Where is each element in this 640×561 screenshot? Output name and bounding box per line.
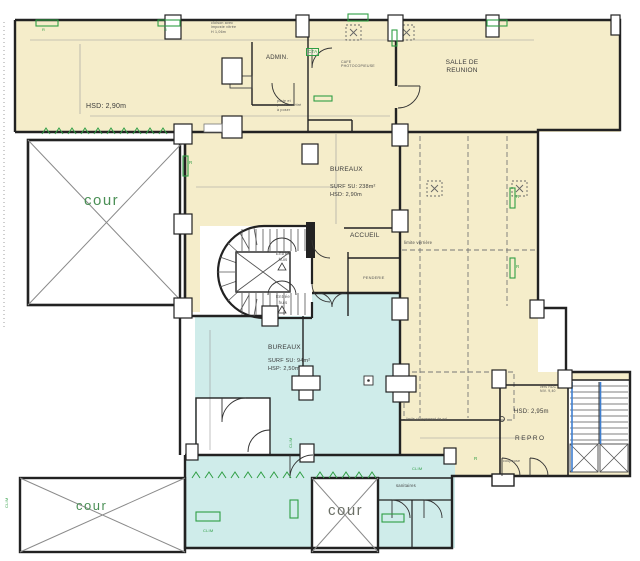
label-accueil: ACCUEIL (350, 232, 380, 240)
label-clim-2: CLIM (412, 466, 422, 471)
label-hsd-repro: HSD: 2,95m (514, 409, 549, 417)
label-entree-1: Entrée huis (270, 251, 296, 262)
label-bureaux-mid-hsd: HSD: 2,90m (330, 192, 362, 199)
label-clim-3: CLIM (203, 528, 213, 533)
label-cta: CTA (306, 48, 319, 56)
label-admin: ADMIN. (266, 55, 288, 63)
label-penderie: PENDERIE (363, 276, 385, 281)
label-bureaux-mid-surface: SURF SU: 238m² (330, 184, 376, 191)
label-bureaux-low-surface: SURF SU: 94m² (268, 358, 310, 365)
note-limite-verriere: limite verrière (404, 240, 432, 245)
label-sanitaires: sanitaires (396, 483, 416, 488)
note-cloison: cloison avec imposte vitrée H 1,06m (211, 21, 236, 34)
label-clim-4: CLIM (4, 498, 9, 508)
note-limite-sol: limite changement de sol (406, 417, 447, 421)
floor-plan: HSD: 2,90m ADMIN. CAFE PHOTOCOPIEUSE SAL… (0, 0, 640, 561)
note-vers-rdc: vers RDC NIV. 9,40 (540, 385, 556, 394)
label-cour-bottom-mid: cour (328, 502, 363, 521)
label-clim-1: CLIM (288, 438, 293, 448)
label-radiator-3: R (189, 160, 192, 166)
label-radiator-2: R (164, 27, 167, 32)
label-hsd-top: HSD: 2,90m (86, 103, 126, 112)
label-radiator-6: R (474, 456, 477, 462)
label-entree-2: Entrée huis (270, 294, 296, 305)
label-repro: REPRO (515, 435, 546, 443)
label-cour-left: cour (84, 192, 119, 211)
label-bureaux-low: BUREAUX (268, 344, 301, 352)
label-salle-reunion: SALLE DE REUNION (432, 59, 492, 75)
label-cafe: CAFE PHOTOCOPIEUSE (341, 60, 375, 69)
label-coupeuse: coupeuse (503, 459, 520, 463)
label-radiator-4: R (516, 194, 519, 200)
label-radiator-5: R (516, 264, 519, 270)
note-porte: porte et panneau vitré à poser (277, 99, 301, 112)
floor-plan-drawing (0, 0, 640, 561)
label-bureaux-low-hsp: HSP: 2,50m (268, 366, 300, 373)
label-radiator-1: R (42, 27, 45, 32)
label-cour-bottom-left: cour (76, 498, 107, 514)
label-bureaux-mid: BUREAUX (330, 166, 363, 174)
